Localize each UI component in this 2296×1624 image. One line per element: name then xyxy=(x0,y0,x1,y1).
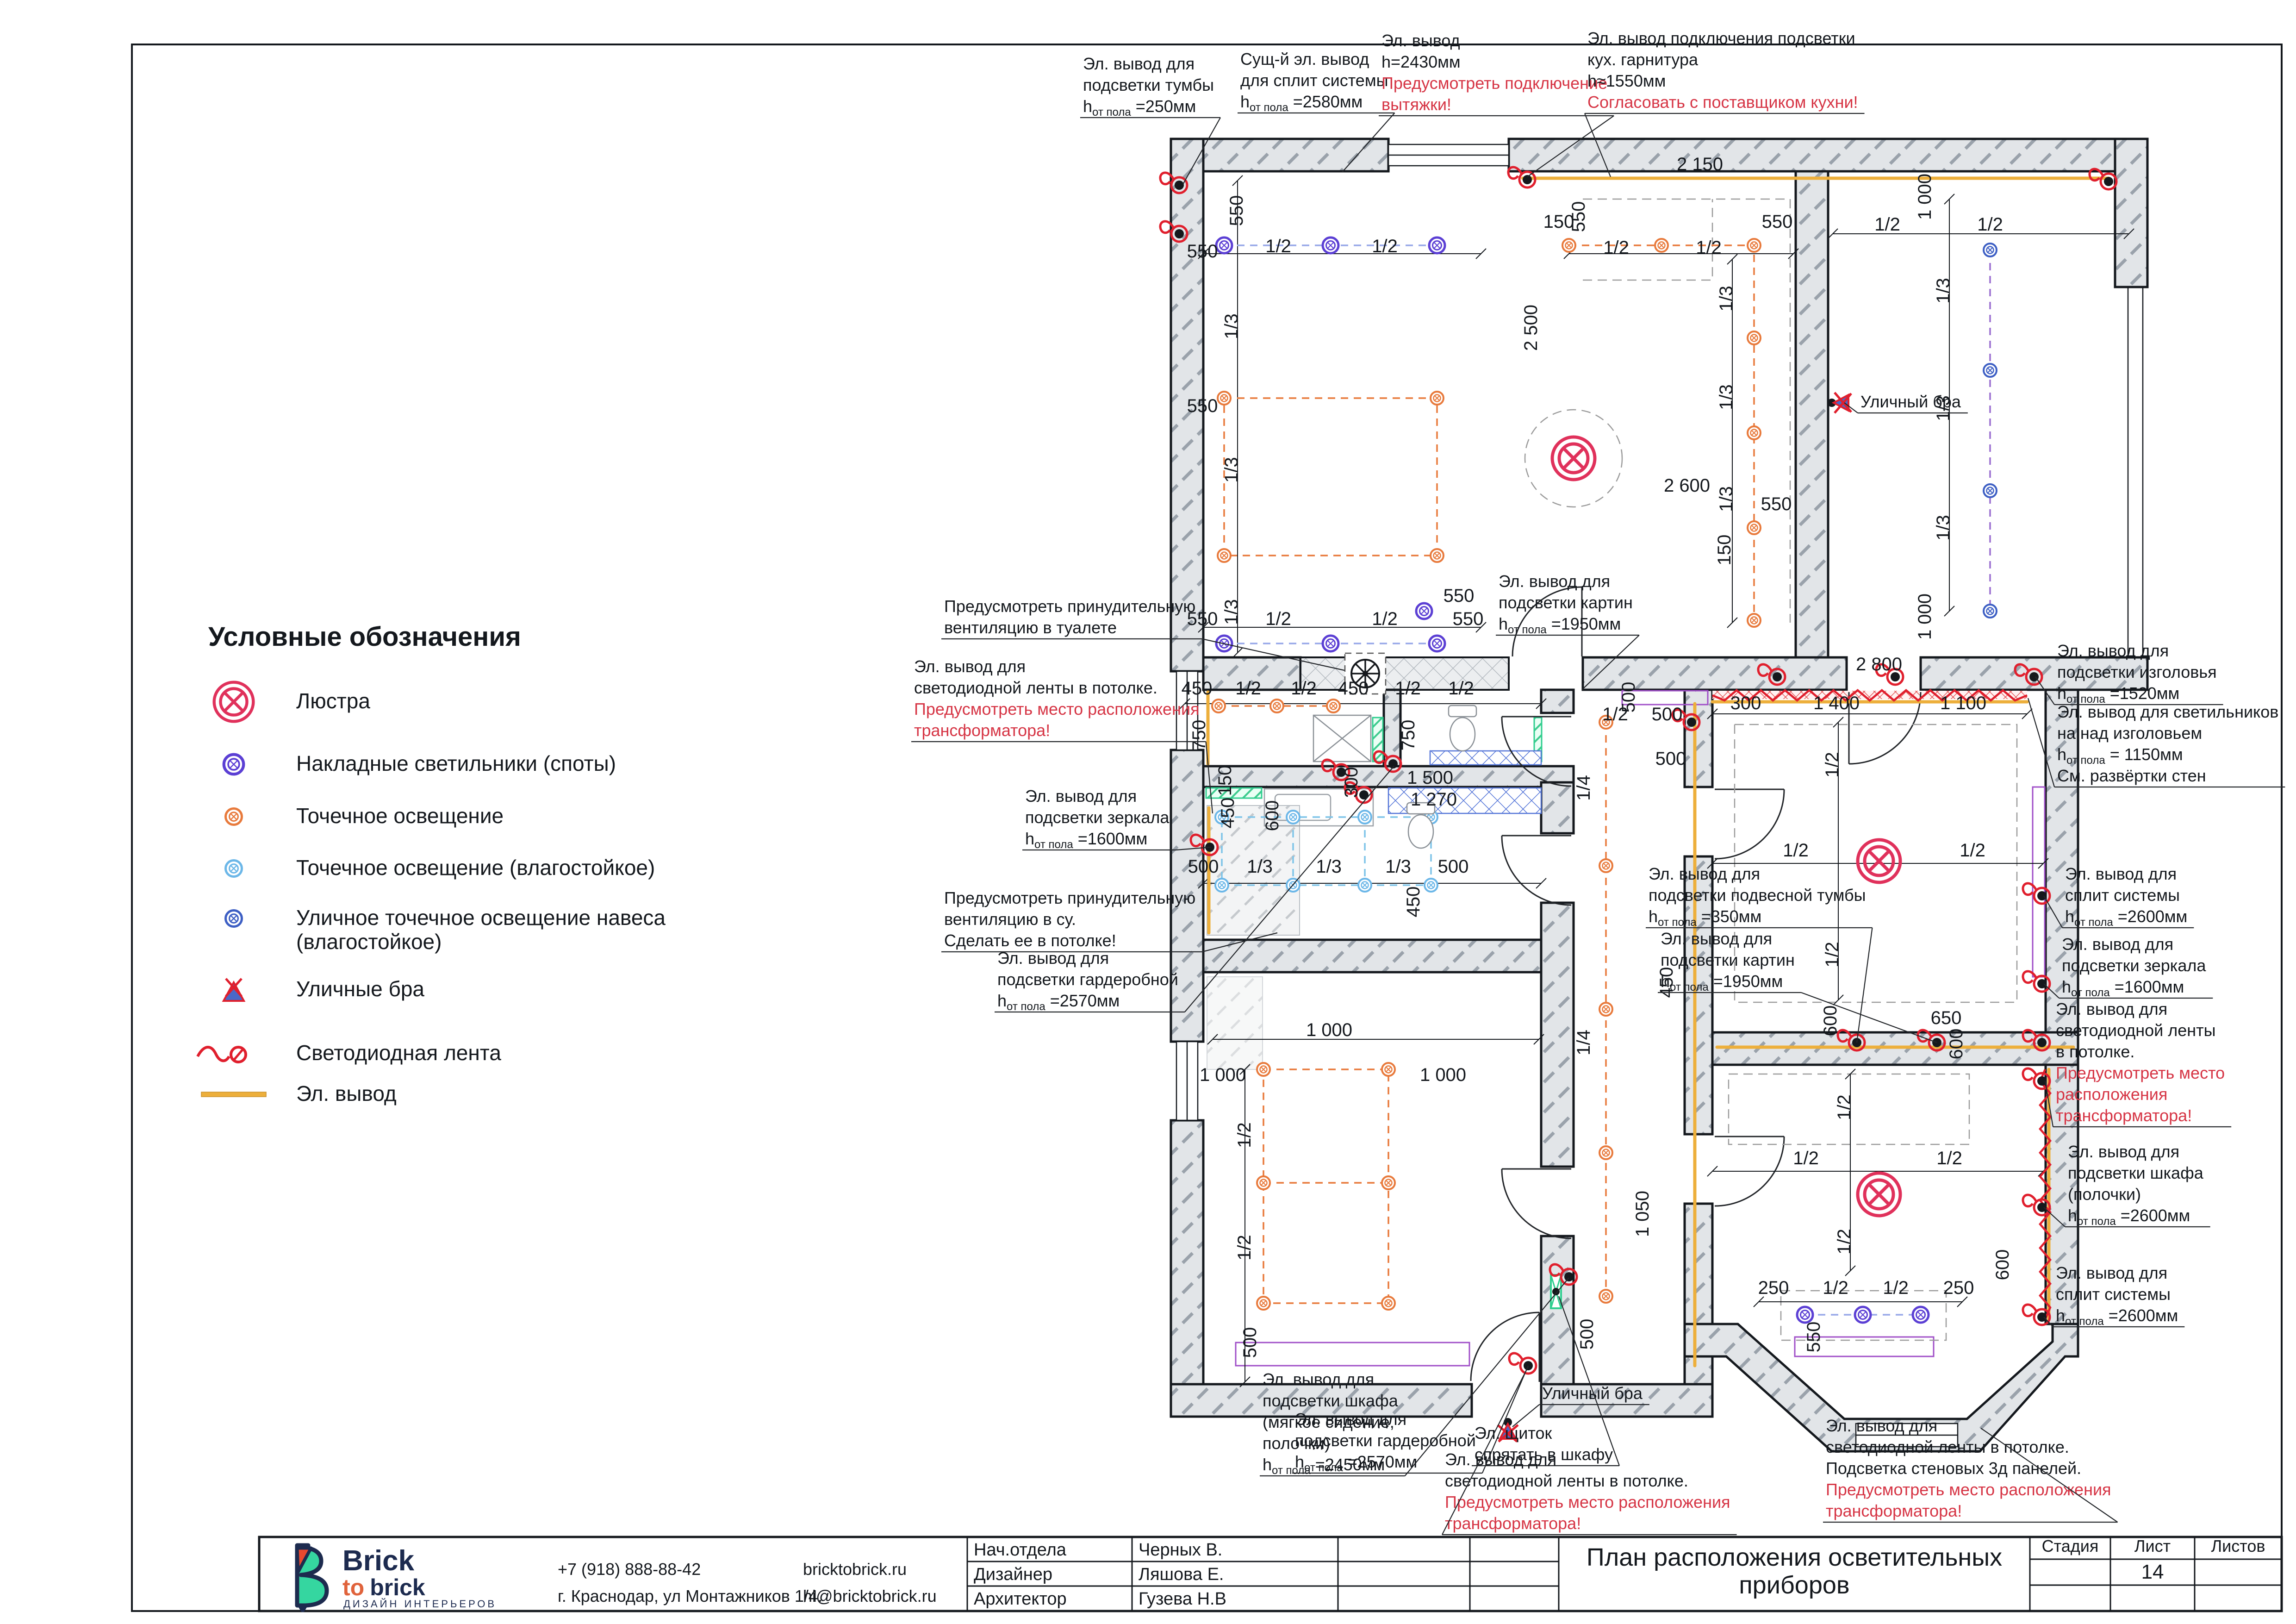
dimension-label: 1/3 xyxy=(1716,384,1736,410)
surface-spot-symbol xyxy=(1429,636,1445,651)
role-1: Нач.отдела xyxy=(974,1540,1067,1560)
dimension-label: 550 xyxy=(1761,494,1792,514)
moistproof-light-symbol xyxy=(1358,879,1371,892)
callout-text: hот пола =250мм xyxy=(1083,97,1196,119)
address: г. Краснодар, ул Монтажников 1/4. xyxy=(558,1587,822,1605)
callout-text: Эл. вывод для xyxy=(2065,864,2177,883)
callout-warning-text: Предусмотреть место расположения xyxy=(914,700,1200,718)
dimension-label: 1/2 xyxy=(1834,1229,1854,1255)
callout-warning-text: трансформатора! xyxy=(914,721,1050,740)
legend-item-label: Уличные бра xyxy=(296,977,424,1001)
point-light-symbol xyxy=(1748,521,1761,534)
legend-item: Эл. вывод xyxy=(201,1081,397,1106)
lighting-plan-svg: 5505501/21/21/31/31/35505501/21/25505502… xyxy=(0,0,2296,1624)
callout: Уличный бра xyxy=(1844,392,1968,413)
callout-text: подсветки шкафа xyxy=(2068,1163,2204,1182)
callout-text: Эл. вывод для xyxy=(1025,787,1137,806)
callout-text: Эл. вывод для xyxy=(914,657,1026,676)
drawing-title-line2: приборов xyxy=(1739,1571,1849,1599)
dimension-label: 250 xyxy=(1758,1278,1789,1298)
dimension-label: 1/2 xyxy=(1234,1122,1255,1148)
point-light-symbol xyxy=(1382,1176,1395,1189)
callout-text: подсветки картин xyxy=(1499,593,1633,612)
point-light-symbol xyxy=(1599,859,1612,872)
dimension-label: 550 xyxy=(1762,212,1793,232)
dimension-label: 750 xyxy=(1398,720,1419,751)
outdoor-light-symbol xyxy=(1984,605,1997,618)
dimension-label: 500 xyxy=(1652,704,1683,725)
point-light-symbol xyxy=(1748,331,1761,344)
callout-text: hот пола =2600мм xyxy=(2065,907,2187,929)
callout-text: Подсветка стеновых 3д панелей. xyxy=(1826,1459,2081,1478)
dimension-label: 1/3 xyxy=(1716,286,1736,312)
dimension-label: 1/2 xyxy=(1265,236,1291,256)
callout-warning-text: трансформатора! xyxy=(1826,1501,1962,1520)
furniture-outline xyxy=(1583,199,1712,280)
point-light-symbol xyxy=(1748,239,1761,252)
dimension-label: 600 xyxy=(1262,800,1282,831)
moistproof-light-symbol xyxy=(1425,879,1437,892)
sheet-number: 14 xyxy=(2141,1561,2164,1583)
callout-text: сплит системы xyxy=(2056,1285,2171,1304)
dimension-label: 550 xyxy=(1568,201,1589,232)
callout-text: подсветки подвесной тумбы xyxy=(1649,886,1866,905)
dimension-label: 650 xyxy=(1931,1008,1962,1028)
dimension-label: 1/2 xyxy=(1395,678,1421,699)
led-lead-symbol xyxy=(1509,1353,1536,1374)
dimension-label: 600 xyxy=(1820,1006,1841,1037)
callout-text: Эл. вывод для xyxy=(2068,1142,2179,1161)
dimension-label: 2 500 xyxy=(1521,305,1541,351)
callout-text: Эл. вывод для xyxy=(1661,929,1772,948)
point-light-symbol xyxy=(1655,239,1668,252)
callout-text: Эл. вывод для xyxy=(2062,935,2173,954)
dimension-label: 1/2 xyxy=(1235,678,1261,699)
callout-text: подсветки зеркала xyxy=(1025,808,1170,827)
legend-item: Уличное точечное освещение навеса(влагос… xyxy=(226,906,666,954)
sheets-label: Листов xyxy=(2211,1537,2265,1555)
dimension-label: 1/3 xyxy=(1933,515,1954,541)
point-light-symbol xyxy=(1257,1297,1270,1310)
callout-text: Эл. вывод для xyxy=(1295,1410,1406,1429)
led-tape-layer xyxy=(1712,690,2050,1319)
callout-warning-text: трансформатора! xyxy=(2056,1106,2192,1125)
dimension-label: 450 xyxy=(1182,678,1213,699)
outdoor-light-symbol xyxy=(1984,484,1997,497)
callout-text: Эл. вывод для светильников xyxy=(2057,702,2278,721)
dimension-label: 1/3 xyxy=(1247,856,1273,877)
callout-text: подсветки гардеробной xyxy=(997,970,1178,989)
dimension-label: 1 000 xyxy=(1200,1065,1246,1085)
legend-item-label: Светодиодная лента xyxy=(296,1041,501,1065)
dimension-label: 2 150 xyxy=(1677,154,1723,175)
callout-text: светодиодной ленты xyxy=(2056,1021,2216,1040)
callout-warning-text: Согласовать с поставщиком кухни! xyxy=(1587,93,1858,112)
callout-text: светодиодной ленты в потолке. xyxy=(914,678,1157,697)
light-symbols-layer xyxy=(1160,167,2116,1442)
callout-text: подсветки тумбы xyxy=(1083,75,1214,94)
callout: Эл. вывод длясплит системыhот пола =2600… xyxy=(2044,864,2194,929)
point-light-symbol xyxy=(1599,1146,1612,1159)
callout: Эл. вывод длясплит системыhот пола =2600… xyxy=(2044,1263,2184,1328)
role-2: Дизайнер xyxy=(974,1565,1052,1584)
callout-text: Сущ-й эл. вывод xyxy=(1240,50,1369,69)
dimension-label: 600 xyxy=(1992,1249,2013,1280)
outdoor-light-symbol xyxy=(1984,244,1997,256)
dimension-label: 1 270 xyxy=(1411,789,1457,810)
dimension-label: 1/2 xyxy=(1372,609,1398,629)
callout-text: светодиодной ленты в потолке. xyxy=(1826,1437,2069,1456)
dimension-label: 550 xyxy=(1444,586,1475,606)
point-light-symbol xyxy=(1257,1176,1270,1189)
legend-item: Уличные бра xyxy=(224,977,424,1001)
dimension-label: 450 xyxy=(1218,798,1238,829)
legend-item: Люстра xyxy=(214,682,371,722)
callout-text: Уличный бра xyxy=(1542,1384,1643,1403)
dimension-label: 1/3 xyxy=(1221,313,1242,339)
dimension-label: 1/3 xyxy=(1716,486,1736,512)
power-lead-icon xyxy=(201,1092,266,1097)
point-light-symbol xyxy=(1270,700,1283,712)
point-light-symbol xyxy=(1599,1290,1612,1303)
washing-machine-symbol xyxy=(1313,715,1371,762)
dimension-label: 450 xyxy=(1338,678,1369,699)
dimension-label: 1/3 xyxy=(1933,278,1954,304)
callout-text: hот пола =350мм xyxy=(1649,907,1761,929)
callout-warning-text: трансформатора! xyxy=(1445,1514,1581,1533)
callout-text: для сплит системы xyxy=(1240,71,1388,90)
led-strip-icon xyxy=(198,1047,246,1062)
dimension-label: 1/4 xyxy=(1574,1030,1594,1056)
point-light-symbol xyxy=(1218,392,1231,405)
legend-item: Точечное освещение (влагостойкое) xyxy=(226,856,655,880)
chandelier-symbol xyxy=(1858,1173,1900,1216)
callout: Эл. вывод дляподсветки шкафа(полочки)hот… xyxy=(2044,1142,2210,1228)
callout-text: См. развёртки стен xyxy=(2057,766,2206,785)
dimension-label: 1/2 xyxy=(1291,678,1317,699)
light-connector xyxy=(1263,1069,1388,1303)
legend-item: Точечное освещение xyxy=(226,804,504,828)
brand-tagline: ДИЗАЙН ИНТЕРЬЕРОВ xyxy=(343,1598,497,1610)
dimension-label: 1/3 xyxy=(1221,457,1242,483)
dimension-labels-layer: 5505501/21/21/31/31/35505501/21/25505502… xyxy=(1182,154,2013,1358)
furniture-outline xyxy=(1583,199,1790,623)
callout-text: (полочки) xyxy=(2068,1185,2141,1204)
spot-moist-icon xyxy=(226,861,242,877)
callout-text: Эл. вывод xyxy=(1381,31,1460,50)
dimension-label: 550 xyxy=(1804,1322,1824,1353)
callout-text: hот пола =1600мм xyxy=(1025,829,1147,851)
callout-text: Эл. вывод для xyxy=(1083,54,1195,73)
chandelier-icon xyxy=(214,682,254,722)
dimension-label: 1/2 xyxy=(1874,214,1900,235)
callout-text: подсветки шкафа xyxy=(1263,1391,1399,1410)
dimension-label: 550 xyxy=(1187,241,1218,262)
role-2-name: Ляшова Е. xyxy=(1139,1565,1224,1584)
callout-text: Эл. вывод для xyxy=(1826,1416,1937,1435)
chandelier-symbol xyxy=(1552,437,1595,480)
callout-text: Эл. вывод для xyxy=(2057,641,2169,660)
stage-label: Стадия xyxy=(2042,1537,2099,1555)
chandelier-symbol xyxy=(1858,840,1900,882)
callout-text: hот пола =1950мм xyxy=(1661,972,1783,993)
dimension-label: 1/2 xyxy=(1883,1278,1909,1298)
dimension-label: 500 xyxy=(1188,856,1219,877)
dimension-label: 300 xyxy=(1730,693,1761,713)
dimension-label: 1/2 xyxy=(1603,237,1629,258)
dimension-label: 500 xyxy=(1438,856,1469,877)
dimension-label: 550 xyxy=(1226,195,1247,226)
callout-text: подсветки зеркала xyxy=(2062,956,2206,975)
callout-text: в потолке. xyxy=(2056,1042,2134,1061)
title-block: Brick tobrick ДИЗАЙН ИНТЕРЬЕРОВ +7 (918)… xyxy=(259,1537,2282,1611)
callout: Эл. вывод дляподсветки изголовьяhот пола… xyxy=(2035,641,2223,706)
sheet-label: Лист xyxy=(2134,1537,2171,1555)
dimension-label: 1/2 xyxy=(1793,1148,1819,1168)
point-light-symbol xyxy=(1257,1063,1270,1076)
dimension-label: 1/3 xyxy=(1385,856,1411,877)
callout-text: кух. гарнитура xyxy=(1587,50,1699,69)
surface-spot-symbol xyxy=(1216,237,1232,253)
callout-warning-text: Предусмотреть подключение xyxy=(1381,74,1607,93)
legend-item: Накладные светильники (споты) xyxy=(224,751,616,775)
dimension-label: 1/2 xyxy=(1834,1094,1854,1120)
callout-text: Сделать ее в потолке! xyxy=(944,931,1116,950)
dimension-label: 1/2 xyxy=(1696,237,1722,258)
surface-spot-symbol xyxy=(1913,1307,1929,1323)
drawing-title-line1: План расположения осветительных xyxy=(1587,1543,2002,1571)
point-light-symbol xyxy=(1218,549,1231,562)
legend-item: Светодиодная лента xyxy=(198,1041,501,1065)
dimension-label: 1 000 xyxy=(1420,1065,1466,1085)
surface-spot-symbol xyxy=(1416,603,1432,619)
dimension-label: 1/2 xyxy=(1448,678,1474,699)
dimension-label: 550 xyxy=(1453,609,1484,629)
callout-warning-text: вытяжки! xyxy=(1381,95,1451,114)
dimension-label: 1/2 xyxy=(1783,840,1809,861)
callout-warning-text: Предусмотреть место расположения xyxy=(1826,1480,2111,1499)
role-3-name: Гузева Н.В xyxy=(1139,1589,1226,1609)
dimension-label: 600 xyxy=(1946,1029,1966,1060)
callout-text: Эл. вывод подключения подсветки xyxy=(1587,29,1855,48)
callout-warning-text: Предусмотреть место xyxy=(2056,1063,2225,1082)
callout-text: Эл. вывод для xyxy=(1499,572,1610,591)
point-light-symbol xyxy=(1562,239,1575,252)
spot-point-icon xyxy=(226,809,242,825)
callout-warning-text: Предусмотреть место расположения xyxy=(1445,1493,1730,1512)
dimension-label: 1/2 xyxy=(1372,236,1398,256)
dimension-label: 500 xyxy=(1240,1327,1260,1358)
dimension-label: 1/3 xyxy=(1316,856,1342,877)
dimension-label: 1/4 xyxy=(1574,775,1594,801)
email: hi@bricktobrick.ru xyxy=(803,1587,937,1605)
surface-spot-symbol xyxy=(1855,1307,1871,1323)
legend-item-label2: (влагостойкое) xyxy=(296,930,442,954)
callout-text: сплит системы xyxy=(2065,886,2180,905)
callout-text: hот пола =2570мм xyxy=(997,991,1120,1013)
moistproof-light-symbol xyxy=(1287,811,1300,824)
point-light-symbol xyxy=(1431,549,1444,562)
callout-text: Эл. щиток xyxy=(1475,1424,1552,1443)
callout-text: Предусмотреть принудительную xyxy=(944,888,1195,907)
surface-spot-symbol xyxy=(1323,636,1338,651)
callout-text: h≈1550мм xyxy=(1587,71,1666,90)
point-light-symbol xyxy=(1599,1003,1612,1016)
callout-text: Эл. вывод для xyxy=(1445,1450,1556,1469)
dimension-label: 500 xyxy=(1577,1319,1597,1350)
moistproof-light-symbol xyxy=(1215,879,1228,892)
callout-text: Эл. вывод для xyxy=(2056,1263,2167,1282)
website: bricktobrick.ru xyxy=(803,1560,907,1579)
callout-text: hот пола =2600мм xyxy=(2068,1206,2190,1228)
callout-text: светодиодной ленты в потолке. xyxy=(1445,1471,1688,1490)
dimension-label: 1 050 xyxy=(1632,1191,1653,1237)
callout-warning-text: расположения xyxy=(2056,1085,2167,1104)
dimension-label: 150 xyxy=(1714,535,1735,566)
sconce-icon xyxy=(224,979,244,1001)
dimension-label: 1/2 xyxy=(1823,1278,1848,1298)
dimension-label: 1 000 xyxy=(1915,174,1935,220)
moistproof-light-symbol xyxy=(1358,811,1371,824)
dimension-label: 2 600 xyxy=(1664,475,1710,496)
callout-text: hот пола =2580мм xyxy=(1240,92,1363,114)
electrical-panel-symbol xyxy=(1551,1275,1561,1308)
spot-surface-icon xyxy=(224,755,244,775)
dimension-label: 1/3 xyxy=(1221,599,1242,625)
callout-text: Уличный бра xyxy=(1860,392,1961,411)
dimension-label: 550 xyxy=(1187,396,1218,416)
legend: Условные обозначения ЛюстраНакладные све… xyxy=(198,622,666,1106)
phone: +7 (918) 888-88-42 xyxy=(558,1560,701,1579)
light-connector xyxy=(1224,398,1437,556)
dimension-label: 1/2 xyxy=(1960,840,1985,861)
brand-line2: tobrick xyxy=(342,1574,425,1600)
callout-text: Эл. вывод для xyxy=(997,949,1109,968)
surface-spot-symbol xyxy=(1797,1307,1813,1323)
drawing-sheet: 5505501/21/21/31/31/35505501/21/25505502… xyxy=(0,0,2296,1624)
dimension-label: 1 000 xyxy=(1306,1020,1352,1040)
dimension-label: 450 xyxy=(1403,887,1424,918)
legend-item-label: Точечное освещение xyxy=(296,804,504,828)
callout-text: вентиляцию в су. xyxy=(944,910,1076,929)
point-light-symbol xyxy=(1431,392,1444,405)
callout-text: подсветки картин xyxy=(1661,950,1795,969)
dimension-label: 1/2 xyxy=(1602,704,1628,725)
surface-spot-symbol xyxy=(1429,237,1445,253)
dimension-label: 500 xyxy=(1655,749,1686,769)
callout-text: hот пола =1950мм xyxy=(1499,614,1621,636)
callout-text: подсветки изголовья xyxy=(2057,662,2217,681)
dimension-label: 250 xyxy=(1943,1278,1974,1298)
outdoor-light-symbol xyxy=(1984,364,1997,377)
point-light-symbol xyxy=(1748,614,1761,627)
dimension-label: 1/2 xyxy=(1822,752,1842,778)
point-light-symbol xyxy=(1748,426,1761,439)
point-light-symbol xyxy=(1327,700,1340,712)
spot-outdoor-icon xyxy=(226,911,242,927)
callout-text: hот пола =1600мм xyxy=(2062,977,2184,999)
callout-text: подсветки гардеробной xyxy=(1295,1431,1476,1450)
dimension-label: 1 500 xyxy=(1407,768,1453,788)
dimension-label: 300 xyxy=(1341,767,1362,798)
callout-text: на над изголовьем xyxy=(2057,724,2202,743)
legend-item-label: Накладные светильники (споты) xyxy=(296,751,616,775)
brand-line1: Brick xyxy=(342,1545,415,1577)
dimension-label: 1/2 xyxy=(1977,214,2003,235)
dimension-label: 1/2 xyxy=(1822,942,1842,968)
legend-item-label: Люстра xyxy=(296,689,370,713)
point-light-symbol xyxy=(1212,700,1225,712)
callout-text: Эл. вывод для xyxy=(2056,999,2167,1018)
legend-item-label: Уличное точечное освещение навеса xyxy=(296,906,666,930)
dimension-label: 1 000 xyxy=(1915,593,1935,640)
dimension-label: 1/2 xyxy=(1234,1235,1255,1261)
callout: Эл. вывод дляподсветки зеркалаhот пола =… xyxy=(2044,935,2213,999)
dimension-label: 1/2 xyxy=(1265,609,1291,629)
callout-text: вентиляцию в туалете xyxy=(944,618,1117,637)
dimension-label: 1 100 xyxy=(1940,693,1986,713)
dimension-label: 1 400 xyxy=(1813,693,1860,713)
dimension-label: 150 xyxy=(1215,765,1235,796)
dimension-label: 2 800 xyxy=(1856,654,1902,675)
role-3: Архитектор xyxy=(974,1589,1067,1609)
point-light-symbol xyxy=(1382,1297,1395,1310)
toilet-symbol xyxy=(1449,706,1476,751)
surface-spot-symbol xyxy=(1323,237,1338,253)
callout-text: Эл. вывод для xyxy=(1263,1370,1374,1389)
callout-text: Эл. вывод для xyxy=(1649,864,1760,883)
point-light-symbol xyxy=(1382,1063,1395,1076)
dimension-label: 1/2 xyxy=(1936,1148,1962,1168)
role-1-name: Черных В. xyxy=(1139,1540,1222,1560)
legend-title: Условные обозначения xyxy=(208,622,521,652)
callout-text: h=2430мм xyxy=(1381,52,1461,71)
legend-item-label: Точечное освещение (влагостойкое) xyxy=(296,856,655,880)
outdoor-sconce-symbol xyxy=(1828,393,1851,413)
legend-item-label: Эл. вывод xyxy=(296,1081,397,1106)
callout-text: Предусмотреть принудительную xyxy=(944,597,1195,616)
